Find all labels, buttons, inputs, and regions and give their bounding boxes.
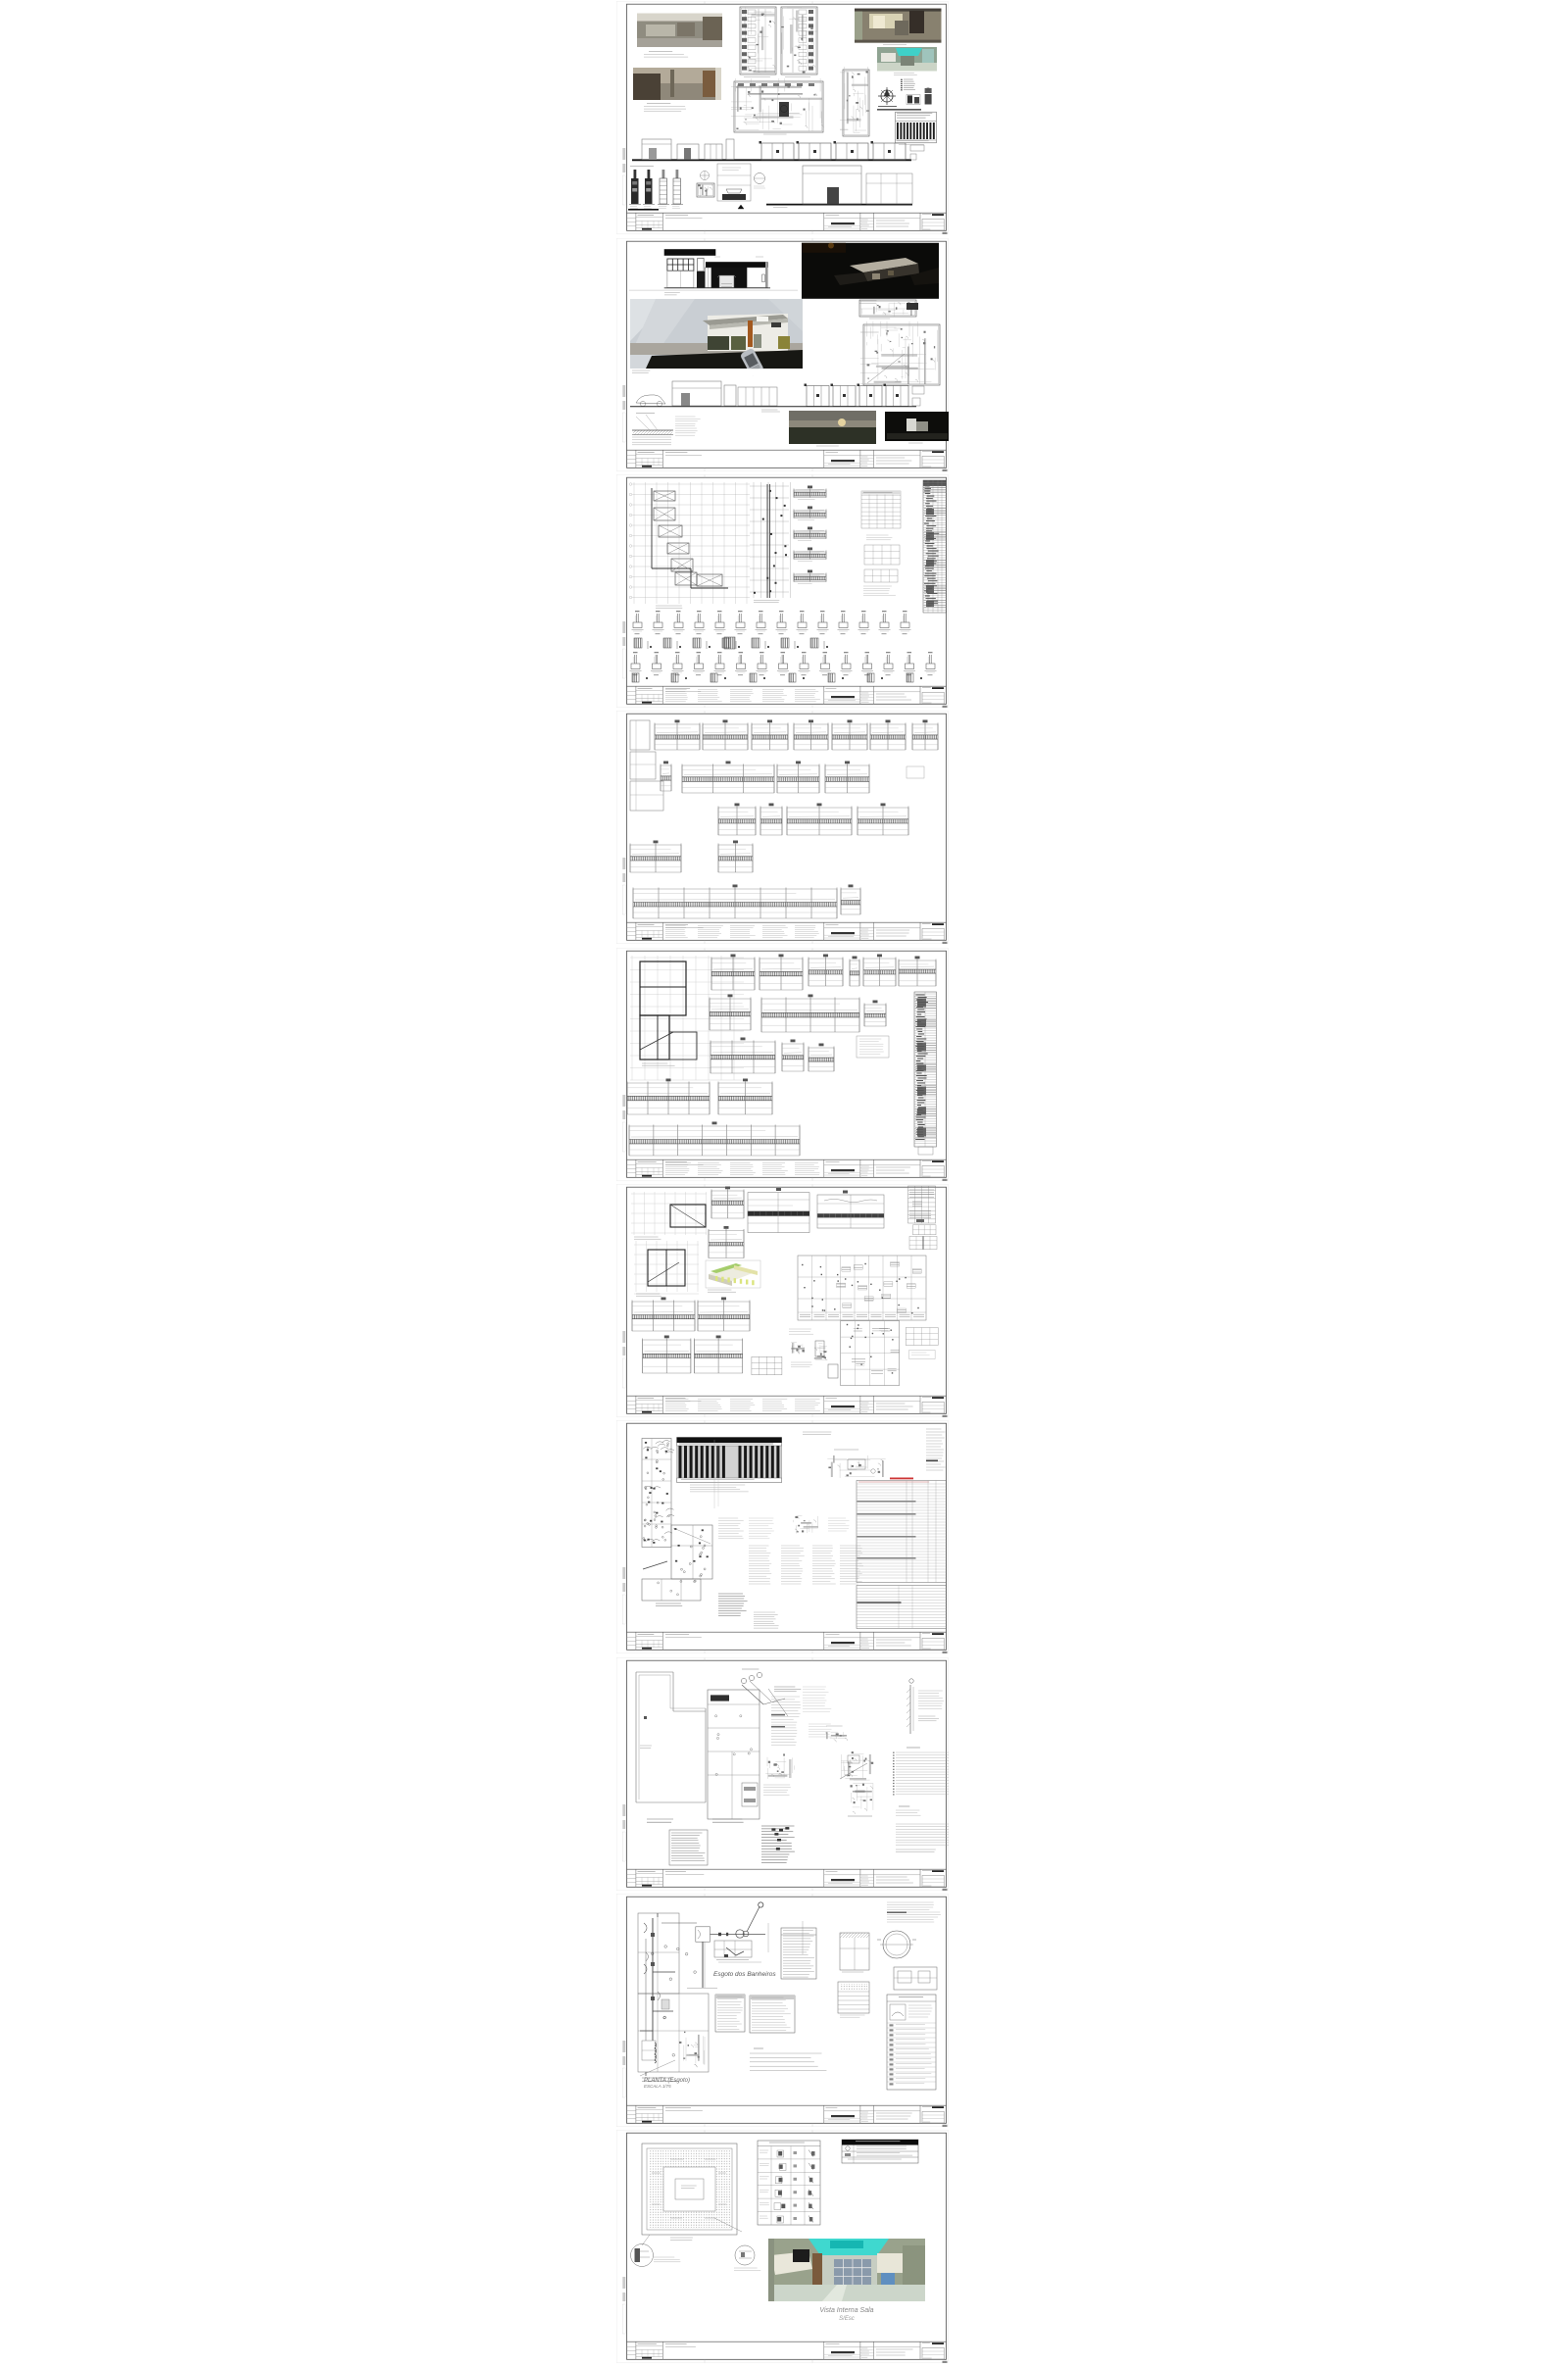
svg-text:ESCALA 1/75: ESCALA 1/75 [644, 2084, 671, 2089]
svg-text:Esgoto dos Banheiros: Esgoto dos Banheiros [713, 1971, 776, 1978]
svg-text:Vista Interna Sala: Vista Interna Sala [819, 2307, 873, 2314]
svg-text:S/Esc: S/Esc [839, 2316, 855, 2322]
